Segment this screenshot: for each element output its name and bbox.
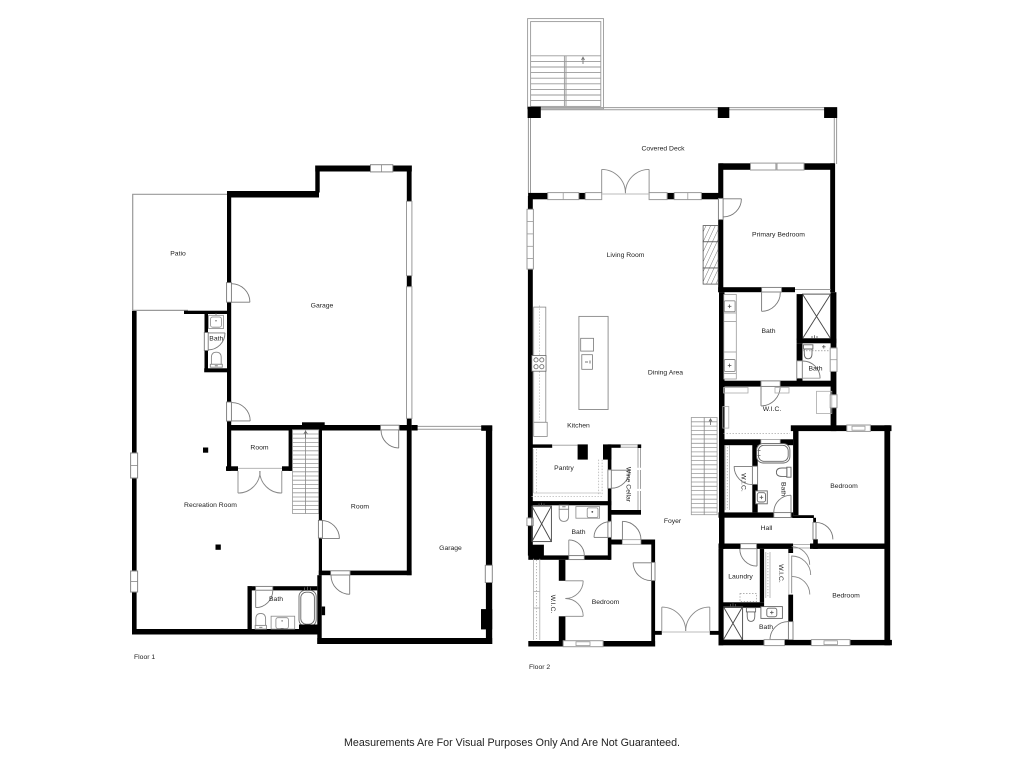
svg-text:W.I.C.: W.I.C.	[549, 595, 556, 614]
svg-text:Bath: Bath	[780, 482, 787, 496]
svg-text:Hall: Hall	[761, 525, 773, 532]
svg-text:Room: Room	[351, 504, 369, 511]
svg-text:Measurements Are For Visual Pu: Measurements Are For Visual Purposes Onl…	[344, 737, 680, 749]
svg-text:Covered Deck: Covered Deck	[641, 146, 685, 153]
svg-text:Bedroom: Bedroom	[832, 593, 860, 600]
svg-text:Room: Room	[250, 445, 268, 452]
svg-text:Kitchen: Kitchen	[567, 423, 590, 430]
svg-text:Bath: Bath	[209, 335, 223, 342]
svg-text:W.I.C.: W.I.C.	[763, 406, 782, 413]
svg-text:Pantry: Pantry	[554, 465, 574, 472]
svg-text:Primary Bedroom: Primary Bedroom	[752, 232, 805, 239]
svg-text:W.I.C.: W.I.C.	[777, 564, 784, 583]
svg-text:Bath: Bath	[809, 365, 823, 372]
svg-text:Garage: Garage	[311, 303, 334, 310]
svg-text:Foyer: Foyer	[664, 518, 682, 525]
svg-text:Laundry: Laundry	[728, 574, 753, 581]
svg-text:Floor 2: Floor 2	[529, 664, 550, 671]
svg-text:Garage: Garage	[439, 545, 462, 552]
svg-text:Wine Cellar: Wine Cellar	[625, 467, 632, 503]
svg-text:Dining Area: Dining Area	[648, 370, 683, 377]
svg-text:Recreation Room: Recreation Room	[184, 502, 237, 509]
svg-text:Bedroom: Bedroom	[592, 599, 620, 606]
svg-text:Bath: Bath	[269, 596, 283, 603]
svg-text:Bedroom: Bedroom	[830, 483, 858, 490]
svg-text:Patio: Patio	[170, 251, 186, 258]
svg-text:Bath: Bath	[572, 529, 586, 536]
svg-text:Bath: Bath	[759, 624, 773, 631]
svg-text:Floor 1: Floor 1	[134, 654, 155, 661]
svg-text:Living Room: Living Room	[607, 252, 645, 259]
svg-text:Bath: Bath	[762, 328, 776, 335]
